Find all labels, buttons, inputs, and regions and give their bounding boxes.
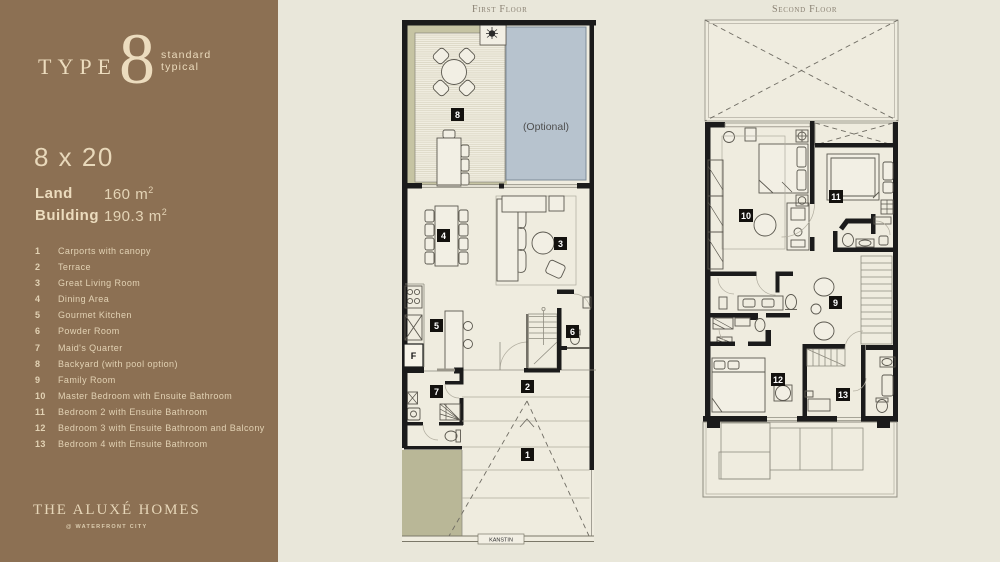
svg-text:13: 13	[838, 390, 848, 400]
svg-text:5: 5	[434, 321, 439, 331]
svg-text:10: 10	[741, 211, 751, 221]
svg-text:7: 7	[434, 387, 439, 397]
svg-text:3: 3	[558, 239, 563, 249]
svg-text:2: 2	[525, 382, 530, 392]
svg-text:(Optional): (Optional)	[523, 121, 569, 133]
svg-text:6: 6	[570, 327, 575, 337]
svg-text:11: 11	[831, 192, 841, 202]
svg-text:12: 12	[773, 375, 783, 385]
svg-text:8: 8	[455, 110, 460, 120]
svg-text:F: F	[411, 351, 417, 361]
svg-text:4: 4	[441, 231, 446, 241]
svg-text:9: 9	[833, 298, 838, 308]
svg-text:KANSTIN: KANSTIN	[489, 538, 513, 544]
svg-text:1: 1	[525, 450, 530, 460]
